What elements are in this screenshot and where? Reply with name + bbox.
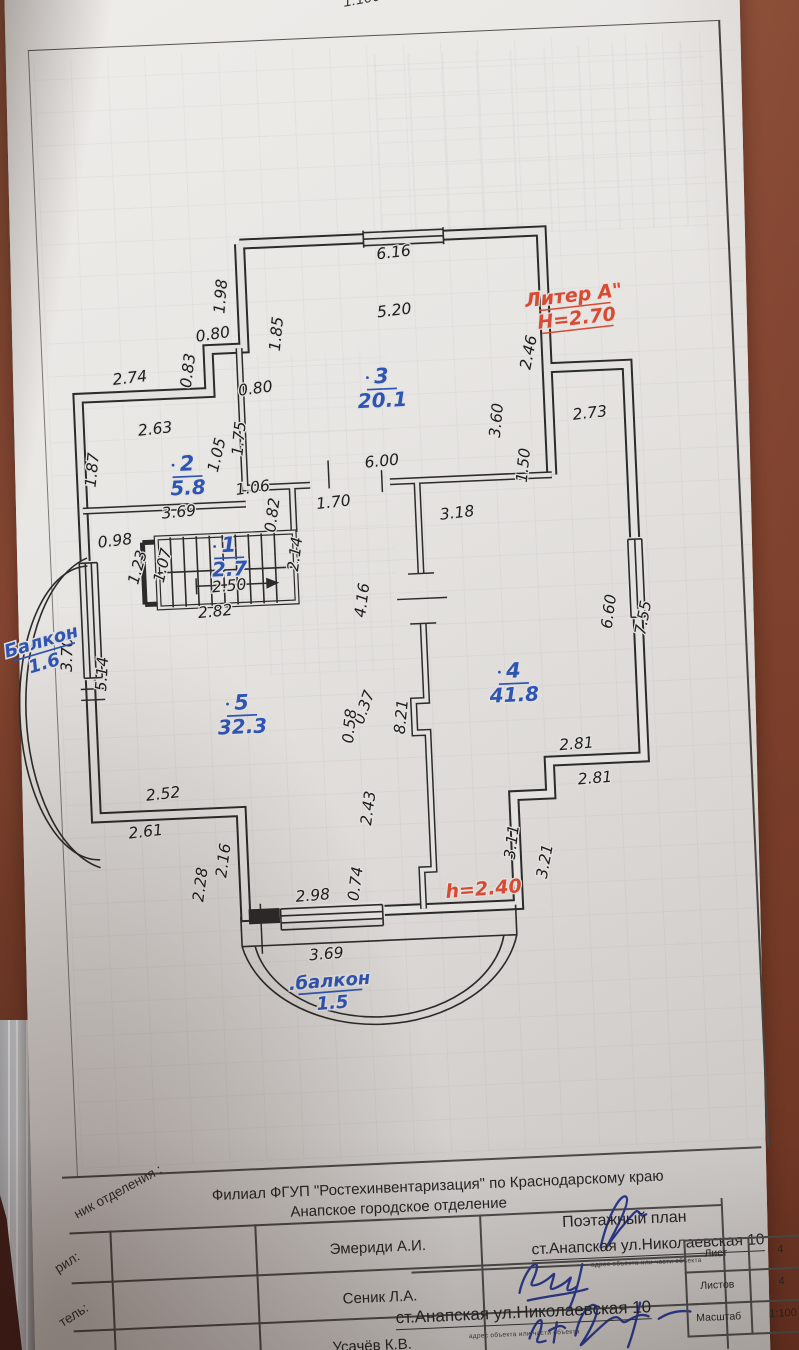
meta-value: 4 [748,1242,799,1257]
room-number: 1 [221,533,237,558]
meta-table-line [685,1266,799,1273]
dimension-label: 1.70 [315,491,351,513]
photographed-floorplan-document: 1:100 "лит А" [0,0,799,1350]
dimension-label: 2.74 [112,367,148,389]
dimension-label: 2.73 [572,402,608,424]
red-note: h=2.40 [445,875,523,903]
room-number-dot [226,703,229,706]
dimension-label: 1.23 [124,548,151,586]
window-south [248,901,385,931]
dimension-label: 1.50 [513,447,534,483]
meta-value: 4 [749,1274,799,1289]
dimension-label: 4.16 [351,582,373,619]
paper-sheet: 1:100 "лит А" [4,0,772,1350]
dimension-label: 2.52 [145,783,181,805]
top-partial-liter: "лит А" [418,0,474,3]
room-number: 4 [505,658,522,683]
dimension-label: 0.80 [194,323,231,346]
person-name: Эмериди А.И. [280,1235,476,1260]
room-number-dot [498,671,501,674]
room-area: 32.3 [217,713,267,739]
dimension-label: 0.82 [261,497,283,534]
dimension-label: 6.00 [364,450,400,471]
room-number-dot [366,376,369,379]
dimension-label: 6.60 [598,593,620,630]
dimension-label: 0.74 [344,865,366,902]
dimension-label: 3.69 [308,944,344,965]
dimension-label: 0.80 [237,377,274,399]
sheet-content: 1:100 "лит А" [0,0,787,1350]
room-number: 3 [374,364,390,389]
dimension-label: 1.75 [228,421,249,457]
dimension-label: 5.20 [376,300,412,322]
dimension-label: 2.16 [212,842,234,879]
dimension-label: 1.06 [234,477,271,499]
dimension-label: 0.83 [177,352,199,389]
dimension-label: 1.05 [204,436,230,474]
dimension-label: 3.18 [439,502,475,524]
balcony-area: 1.5 [316,992,349,1015]
meta-label: Масштаб [687,1310,751,1325]
room-area: 2.7 [211,556,248,582]
dimension-label: 2.28 [189,866,211,903]
dimension-label: 6.16 [375,241,411,263]
dimension-label: 5.14 [92,656,112,692]
wall-pier [248,908,280,924]
titleblock-line [479,1215,487,1350]
dimension-label: 3.21 [533,843,557,880]
dimension-label: 2.98 [295,885,331,906]
room-area: 5.8 [170,475,207,501]
room-area: 41.8 [488,681,539,707]
dimension-label: 3.69 [161,501,197,522]
dimension-label: 8.21 [391,699,412,735]
floorplan-drawing: 6.165.201.980.800.832.741.850.801.751.05… [0,103,799,1097]
dimension-label: 2.81 [559,734,595,755]
room-number-dot [172,464,175,467]
dimension-label: 2.14 [284,536,306,573]
room-number: 2 [179,451,195,476]
meta-value: 1:100 [750,1306,799,1321]
dimension-label: 1.98 [210,278,231,314]
dimension-label: 1.85 [266,316,287,352]
dimension-label: 1.87 [82,452,103,488]
dimension-label: 3.60 [486,402,507,438]
room-number: 5 [234,690,250,715]
dimension-label: 0.58 [339,708,360,744]
balcony-label: .балкон [288,968,371,995]
dimension-label: 2.81 [577,768,613,789]
top-partial-scale: 1:100 [342,0,382,11]
dimension-label: 0.98 [97,530,133,552]
meta-label: Листов [685,1278,749,1293]
dimension-label: 2.61 [128,821,164,843]
room-area: 20.1 [357,387,407,413]
dimension-label: 2.63 [137,418,173,440]
dimension-label: 2.46 [516,334,541,372]
dimension-label: 2.43 [357,790,379,827]
dimension-label: 2.82 [197,601,233,622]
titleblock-line [254,1224,262,1350]
room-number-dot [213,545,216,548]
